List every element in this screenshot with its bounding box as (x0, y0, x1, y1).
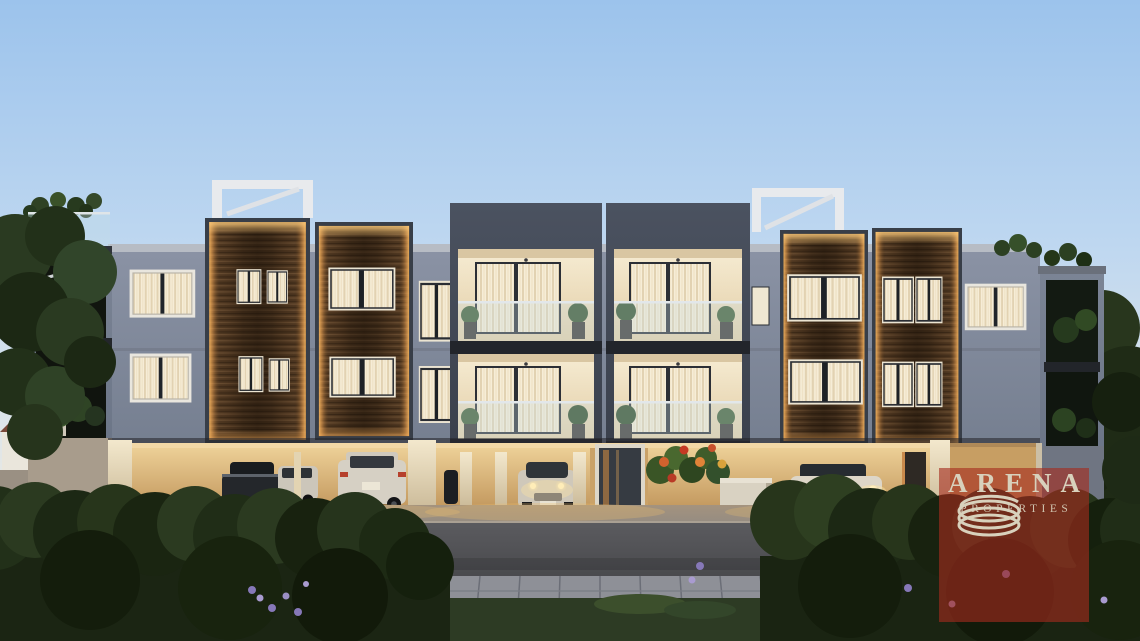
watermark-tagline-text: PROPERTIES (956, 503, 1073, 515)
balcony-box-1 (450, 203, 602, 445)
real-estate-render: ARENA PROPERTIES (0, 0, 1140, 641)
parked-motorbike (444, 470, 458, 504)
timber-tower-2 (315, 222, 413, 440)
entrance-door (595, 444, 645, 510)
timber-tower-3 (780, 230, 868, 445)
timber-tower-4 (872, 228, 962, 447)
balcony-box-2 (606, 203, 750, 447)
car-silver-front-center (518, 462, 576, 510)
arena-properties-watermark: ARENA PROPERTIES (939, 468, 1089, 622)
timber-tower-1 (205, 218, 310, 444)
